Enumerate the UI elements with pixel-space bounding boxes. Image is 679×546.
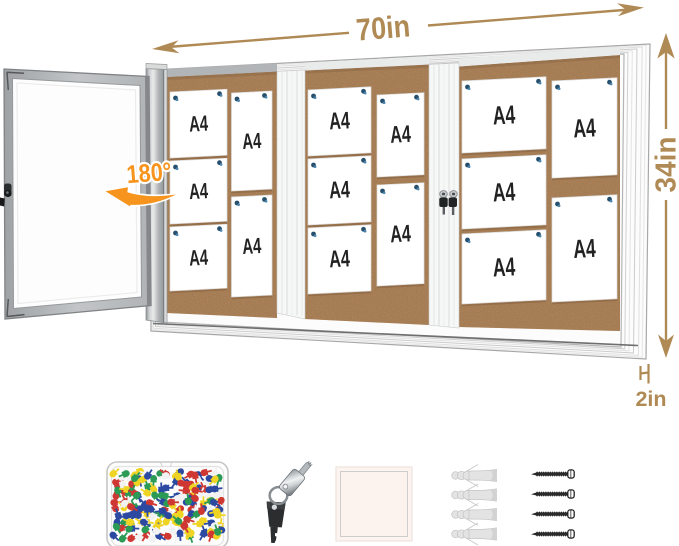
svg-text:A4: A4 <box>188 245 209 271</box>
svg-text:A4: A4 <box>329 107 351 135</box>
svg-text:A4: A4 <box>492 99 516 130</box>
svg-text:A4: A4 <box>242 128 263 154</box>
svg-text:A4: A4 <box>492 251 516 282</box>
svg-text:A4: A4 <box>492 176 516 207</box>
svg-text:A4: A4 <box>329 176 351 204</box>
svg-text:A4: A4 <box>390 220 412 248</box>
svg-text:A4: A4 <box>188 178 209 204</box>
svg-text:A4: A4 <box>188 111 209 137</box>
svg-text:A4: A4 <box>573 233 597 264</box>
svg-text:70in: 70in <box>355 8 412 47</box>
svg-text:2in: 2in <box>635 387 666 411</box>
svg-text:A4: A4 <box>242 233 263 259</box>
svg-text:A4: A4 <box>573 112 597 143</box>
svg-text:A4: A4 <box>390 121 412 149</box>
svg-text:34in: 34in <box>651 137 679 193</box>
svg-text:180°: 180° <box>126 158 173 189</box>
svg-text:A4: A4 <box>329 245 351 273</box>
